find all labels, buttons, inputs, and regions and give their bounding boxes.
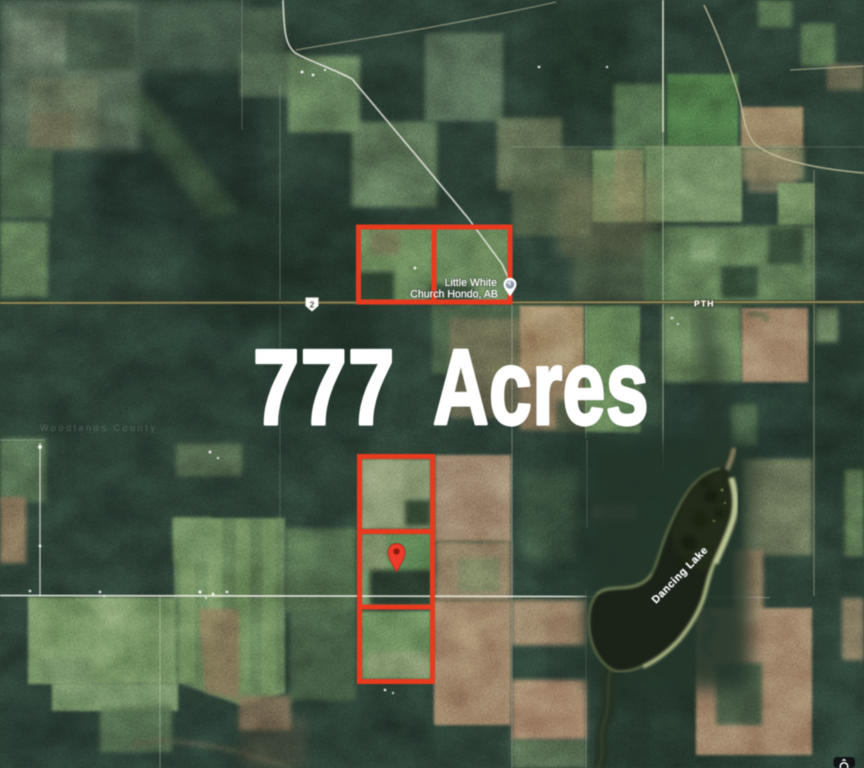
svg-text:Woodlands County: Woodlands County [40,423,157,433]
svg-text:Little White: Little White [445,277,498,289]
svg-text:PTH: PTH [694,299,715,309]
svg-text:2: 2 [310,300,315,310]
svg-text:Church Hondo, AB: Church Hondo, AB [410,289,498,301]
svg-text:Acres: Acres [433,328,649,447]
svg-text:777: 777 [253,328,396,447]
